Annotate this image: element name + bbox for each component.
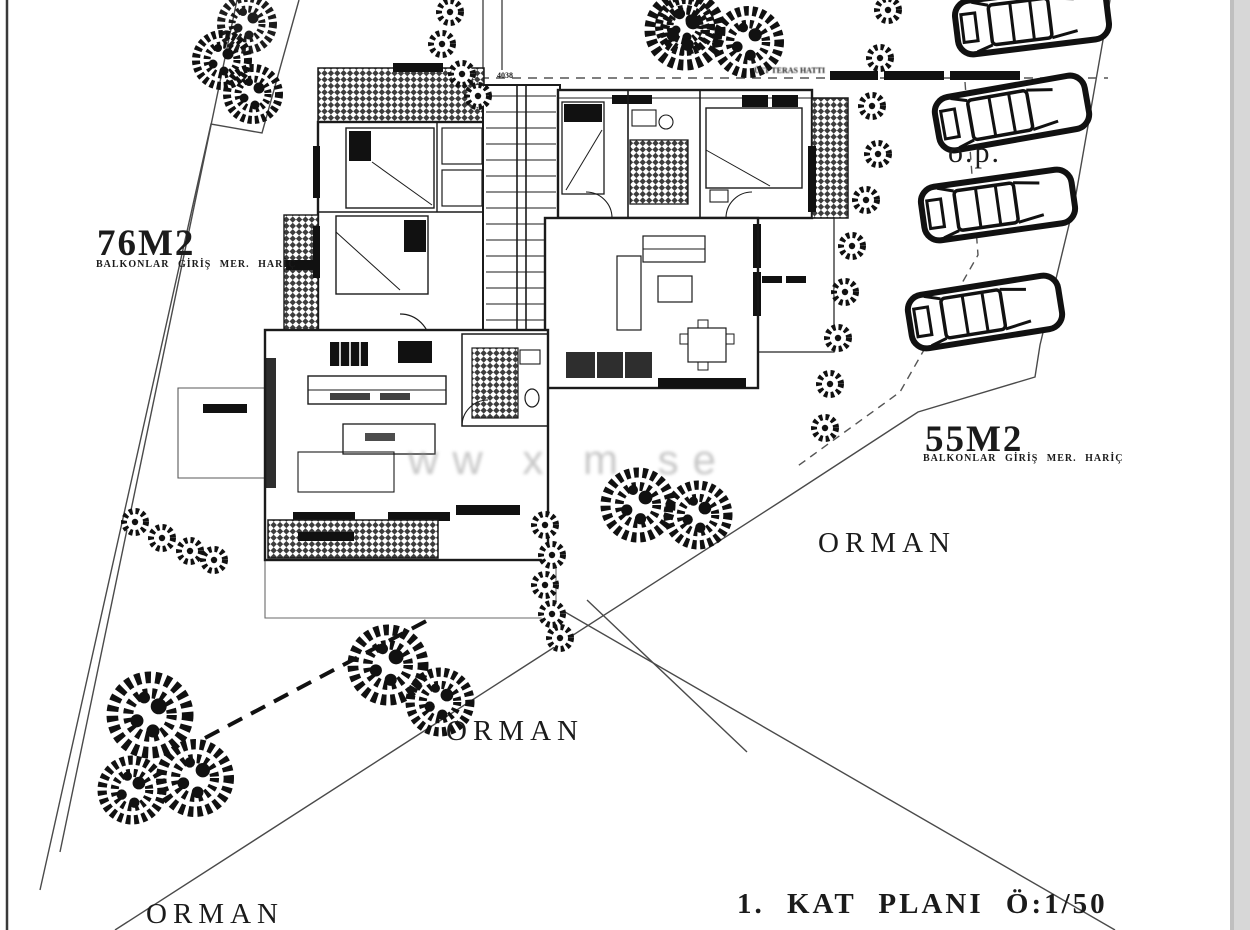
area-note-76m2: BALKONLAR GİRİŞ MER. HARİÇ [96, 259, 296, 271]
watermark: ww x m se [408, 436, 730, 484]
forest-label-bottom: ORMAN [146, 898, 284, 930]
unit-upper-right [558, 90, 848, 218]
unit-upper-left [284, 63, 487, 345]
area-note-55m2: BALKONLAR GİRİŞ MER. HARİÇ [923, 453, 1123, 465]
unit-living-right [545, 218, 834, 388]
terrace-note-label: ÜST TERAS HATTI [754, 66, 825, 75]
forest-label-center: ORMAN [446, 715, 584, 748]
site-plan-page: 76M2 BALKONLAR GİRİŞ MER. HARİÇ 55M2 BAL… [0, 0, 1250, 930]
open-parking-label: o.p. [948, 136, 1001, 170]
forest-label-right: ORMAN [818, 527, 956, 560]
plan-title: 1. KAT PLANI Ö:1/50 [737, 888, 1108, 921]
scan-edge-line [1230, 0, 1234, 930]
dimension-label: 4038 [497, 71, 513, 80]
